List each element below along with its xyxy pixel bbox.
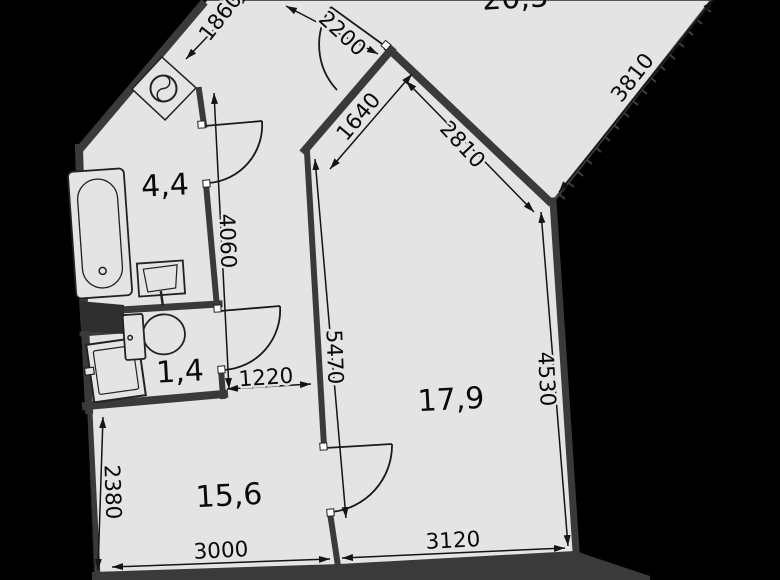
- dimension-label-3120: 3120: [425, 527, 481, 555]
- room-label-15-6: 15,6: [195, 477, 264, 515]
- door-jamb: [214, 305, 221, 312]
- door-jamb: [198, 121, 205, 128]
- dimension-label-1220: 1220: [238, 364, 294, 393]
- dimension-label-4530: 4530: [532, 351, 560, 407]
- door-jamb: [320, 443, 327, 450]
- dimension-label-2380: 2380: [99, 464, 126, 520]
- room-label-toilet: 1,4: [155, 353, 204, 390]
- floor-plan: 1860 2200 3810 1640 2810 4060 5470 4530: [0, 0, 780, 580]
- room-label-bathroom: 4,4: [140, 167, 189, 204]
- dimension-label-4060: 4060: [214, 213, 241, 269]
- washbasin-tap: [84, 367, 94, 375]
- room-label-17-9: 17,9: [417, 381, 486, 419]
- dimension-label-3000: 3000: [193, 537, 249, 565]
- bathtub: [68, 168, 133, 299]
- door-jamb: [327, 509, 334, 516]
- door-jamb: [203, 180, 210, 187]
- door-jamb: [218, 366, 225, 373]
- toilet-tank: [123, 314, 146, 360]
- wall-shaft-block: [79, 301, 124, 334]
- dimension-label-5470: 5470: [321, 329, 348, 385]
